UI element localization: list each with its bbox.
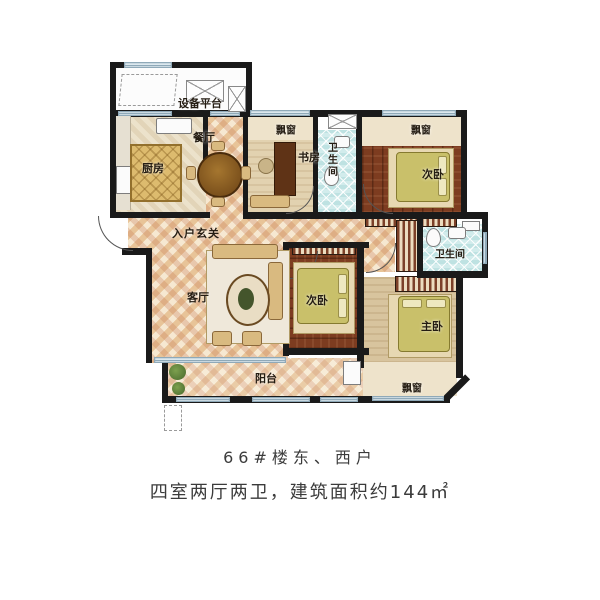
wall: [357, 242, 364, 368]
caption-line2: 四室两厅两卫，建筑面积约144㎡: [0, 478, 600, 504]
label-dining: 餐厅: [193, 129, 215, 145]
dining-chair: [241, 166, 251, 180]
bath-side-closet: [396, 220, 418, 272]
caption-line1: 66#楼东、西户: [0, 444, 600, 468]
vent-shaft: [228, 86, 246, 112]
sliding-door: [154, 357, 286, 363]
pillow: [426, 299, 446, 308]
window: [250, 110, 310, 116]
label-kitchen: 厨房: [142, 160, 164, 176]
wall: [243, 212, 488, 219]
sofa: [212, 244, 278, 259]
kitchen-sink: [156, 118, 192, 134]
platform-dashed-outline: [118, 74, 177, 106]
wall: [313, 117, 318, 217]
window: [252, 397, 310, 402]
wall: [461, 110, 467, 218]
dining-chair: [211, 197, 225, 207]
pillow: [402, 299, 422, 308]
outside-platform-symbol: [164, 405, 182, 431]
study-bench: [250, 195, 290, 208]
label-bath-top: 卫生间: [324, 142, 339, 178]
table-centerpiece: [238, 288, 254, 310]
dining-table: [197, 152, 243, 198]
sink: [448, 227, 466, 239]
armchair: [212, 331, 232, 346]
toilet: [426, 228, 441, 247]
label-bay-window-master: 飘窗: [402, 380, 422, 395]
sofa: [268, 262, 283, 320]
kitchen-counter: [116, 116, 131, 210]
study-desk: [274, 142, 296, 196]
label-study: 书房: [298, 149, 320, 165]
pillow: [338, 298, 347, 318]
wall: [246, 62, 252, 117]
entry-door-arc: [98, 216, 133, 251]
window: [320, 397, 358, 402]
wall: [146, 250, 152, 363]
label-equipment-platform: 设备平台: [178, 95, 222, 111]
dining-chair: [186, 166, 196, 180]
wall: [417, 271, 488, 278]
label-bath-right: 卫生间: [435, 246, 465, 261]
window: [176, 397, 230, 402]
label-bedroom-center: 次卧: [306, 292, 328, 308]
pillow: [338, 274, 347, 294]
washing-machine: [343, 361, 361, 385]
vent-shaft: [328, 114, 357, 129]
armchair: [242, 331, 262, 346]
label-bedroom-top-right: 次卧: [422, 166, 444, 182]
label-master-bedroom: 主卧: [421, 318, 443, 334]
label-balcony: 阳台: [255, 370, 277, 386]
study-chair: [258, 158, 274, 174]
window: [372, 396, 444, 401]
label-bay-window-study: 飘窗: [276, 122, 296, 137]
window: [483, 232, 487, 264]
window: [382, 110, 456, 116]
floor-plan-image: 设备平台 厨房 餐厅 飘窗 书房 卫生间 飘窗 次卧 入户玄关 客厅 次卧 卫生…: [0, 0, 600, 600]
plant: [169, 364, 186, 380]
plant: [172, 382, 185, 395]
master-wardrobe: [395, 276, 457, 292]
window: [124, 62, 172, 68]
label-living: 客厅: [187, 289, 209, 305]
wall: [417, 218, 423, 278]
label-bay-window-top-right: 飘窗: [411, 122, 431, 137]
label-entry-hall: 入户玄关: [172, 225, 220, 241]
wall: [456, 271, 463, 378]
wall: [243, 112, 248, 217]
